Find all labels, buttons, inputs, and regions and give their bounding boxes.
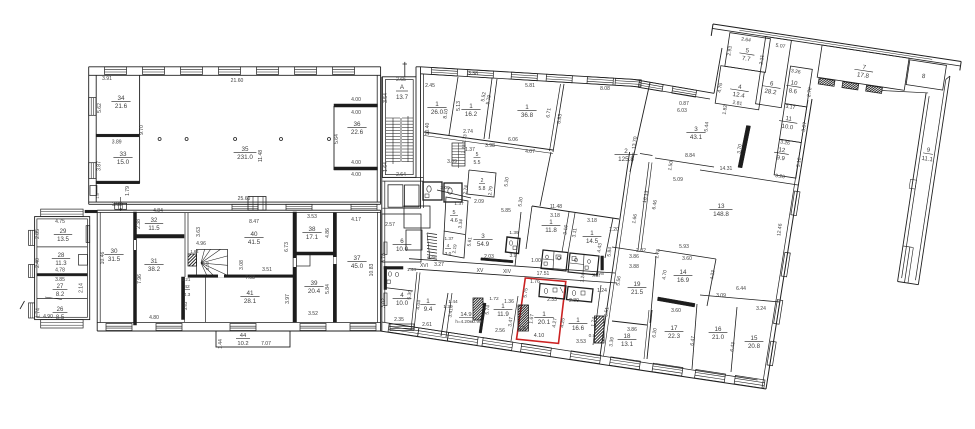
svg-text:20.4: 20.4	[308, 288, 321, 295]
svg-text:3.38: 3.38	[468, 71, 478, 77]
svg-text:6.73: 6.73	[284, 242, 290, 252]
svg-text:5: 5	[453, 210, 456, 216]
svg-text:13.7: 13.7	[396, 94, 409, 101]
svg-text:3.53: 3.53	[576, 339, 586, 345]
svg-text:33: 33	[119, 151, 127, 158]
svg-text:6.06: 6.06	[508, 137, 518, 143]
svg-text:7.96: 7.96	[137, 274, 143, 284]
svg-text:XIII: XIII	[592, 273, 600, 279]
svg-text:15: 15	[751, 335, 758, 342]
svg-text:9.4: 9.4	[424, 306, 433, 313]
svg-text:7.08: 7.08	[245, 275, 255, 281]
svg-text:37: 37	[353, 255, 361, 262]
svg-text:13: 13	[717, 203, 725, 210]
svg-text:1.39: 1.39	[509, 230, 519, 236]
svg-text:4.86: 4.86	[325, 228, 331, 238]
svg-text:21.60: 21.60	[231, 78, 244, 84]
svg-text:1.44: 1.44	[407, 267, 416, 272]
svg-text:2.74: 2.74	[463, 129, 473, 135]
svg-text:4.00: 4.00	[351, 97, 361, 103]
svg-text:3.53: 3.53	[307, 214, 317, 220]
svg-text:1.64: 1.64	[190, 249, 199, 254]
svg-text:4.80: 4.80	[149, 315, 159, 321]
svg-text:1.74: 1.74	[36, 308, 42, 318]
svg-text:3.08: 3.08	[112, 202, 122, 208]
svg-text:15.0: 15.0	[117, 159, 130, 166]
svg-text:54.9: 54.9	[477, 241, 490, 248]
svg-text:4.84: 4.84	[153, 208, 163, 214]
svg-text:10.40: 10.40	[425, 122, 431, 135]
svg-text:3.60: 3.60	[671, 308, 681, 314]
svg-text:3.60: 3.60	[682, 256, 692, 262]
svg-text:38.2: 38.2	[148, 266, 161, 273]
svg-text:4.90: 4.90	[43, 314, 53, 320]
svg-text:1.44: 1.44	[218, 339, 224, 349]
svg-text:7.7: 7.7	[741, 55, 751, 63]
svg-text:38: 38	[308, 226, 316, 233]
svg-text:11.9: 11.9	[497, 311, 509, 318]
svg-text:3.86: 3.86	[627, 327, 637, 333]
svg-text:32: 32	[151, 218, 158, 224]
svg-text:3.63: 3.63	[196, 227, 202, 237]
svg-text:XV: XV	[477, 268, 484, 274]
svg-text:4.10: 4.10	[534, 333, 545, 339]
svg-text:3.54: 3.54	[383, 93, 389, 103]
svg-text:4.17: 4.17	[351, 217, 361, 223]
svg-text:9.70: 9.70	[139, 125, 145, 135]
svg-text:5.8: 5.8	[479, 186, 486, 192]
svg-text:1: 1	[426, 298, 430, 305]
svg-text:1.36: 1.36	[504, 299, 514, 305]
svg-text:XIV: XIV	[503, 269, 512, 275]
svg-text:4.78: 4.78	[55, 268, 65, 274]
svg-text:13.5: 13.5	[57, 237, 69, 243]
svg-text:2.45: 2.45	[425, 83, 435, 89]
svg-text:35: 35	[241, 146, 249, 153]
svg-text:16: 16	[715, 326, 722, 333]
svg-text:2.02: 2.02	[636, 248, 646, 254]
svg-text:0.90: 0.90	[472, 319, 482, 325]
svg-text:1.21: 1.21	[182, 277, 191, 282]
svg-text:3.97: 3.97	[285, 294, 291, 304]
svg-text:16.2: 16.2	[465, 111, 478, 118]
svg-text:1.37: 1.37	[445, 236, 454, 241]
svg-text:20.1: 20.1	[538, 319, 551, 326]
svg-text:16.9: 16.9	[677, 277, 690, 284]
svg-text:3.86: 3.86	[629, 254, 639, 260]
svg-text:41.5: 41.5	[248, 239, 261, 246]
svg-text:10.0: 10.0	[396, 246, 409, 253]
svg-text:26: 26	[57, 307, 64, 313]
svg-text:3.27: 3.27	[434, 262, 444, 268]
svg-text:231.0: 231.0	[237, 154, 253, 161]
svg-text:41: 41	[246, 290, 254, 297]
svg-text:28.1: 28.1	[244, 298, 257, 305]
svg-text:28: 28	[58, 253, 65, 259]
svg-text:11.48: 11.48	[550, 204, 562, 210]
svg-text:19: 19	[634, 281, 641, 288]
svg-text:2: 2	[624, 148, 628, 155]
svg-text:2.38: 2.38	[136, 219, 142, 229]
svg-text:2.33: 2.33	[547, 297, 557, 303]
svg-text:21.6: 21.6	[115, 103, 128, 110]
svg-text:5.84: 5.84	[325, 284, 331, 294]
svg-text:6: 6	[400, 238, 404, 245]
svg-text:21.0: 21.0	[712, 334, 725, 341]
svg-text:10.0: 10.0	[396, 300, 409, 307]
svg-text:6.03: 6.03	[677, 108, 687, 114]
svg-text:1: 1	[542, 311, 546, 318]
svg-text:4.6: 4.6	[450, 218, 458, 224]
svg-text:31: 31	[150, 258, 158, 265]
svg-text:29: 29	[60, 229, 67, 235]
svg-text:1: 1	[469, 103, 473, 110]
svg-text:4.75: 4.75	[55, 219, 65, 225]
svg-text:1.64: 1.64	[383, 162, 389, 172]
svg-text:14: 14	[680, 269, 687, 276]
svg-text:42: 42	[184, 284, 190, 290]
svg-text:3.09: 3.09	[716, 293, 726, 299]
svg-text:8.5: 8.5	[56, 315, 65, 321]
svg-text:1: 1	[525, 104, 529, 111]
svg-text:5.09: 5.09	[673, 177, 683, 183]
svg-text:3.87: 3.87	[96, 161, 102, 171]
svg-text:26.0: 26.0	[431, 109, 444, 116]
svg-text:17.1: 17.1	[306, 234, 319, 241]
svg-text:1: 1	[549, 219, 553, 226]
svg-text:5.85: 5.85	[501, 208, 511, 214]
svg-text:1.79: 1.79	[125, 186, 131, 196]
svg-text:10.2: 10.2	[237, 341, 248, 347]
svg-text:30: 30	[110, 248, 118, 255]
svg-text:14.31: 14.31	[720, 166, 733, 172]
svg-text:4.00: 4.00	[351, 172, 361, 178]
svg-text:4: 4	[447, 243, 450, 249]
svg-text:1.72: 1.72	[489, 296, 499, 302]
svg-text:2.57: 2.57	[385, 222, 395, 228]
svg-text:14.9: 14.9	[460, 312, 471, 318]
svg-text:3: 3	[694, 126, 698, 133]
svg-text:2.61: 2.61	[422, 322, 432, 328]
svg-text:3.78: 3.78	[381, 253, 387, 263]
svg-text:10.83: 10.83	[369, 263, 375, 276]
svg-text:3.24: 3.24	[756, 306, 766, 312]
svg-text:3.91: 3.91	[102, 76, 112, 82]
svg-text:3.02: 3.02	[381, 298, 387, 308]
svg-text:34: 34	[117, 95, 125, 102]
svg-text:5: 5	[476, 152, 479, 158]
svg-text:5.13: 5.13	[456, 101, 462, 111]
svg-text:2.65: 2.65	[396, 77, 406, 83]
svg-text:4.96: 4.96	[196, 241, 206, 247]
svg-text:8.47: 8.47	[249, 219, 259, 225]
svg-text:0.90: 0.90	[518, 326, 528, 332]
svg-text:3.98: 3.98	[485, 143, 495, 149]
svg-text:45.0: 45.0	[351, 263, 364, 270]
svg-text:6.44: 6.44	[736, 286, 746, 292]
svg-text:5.81: 5.81	[525, 83, 535, 89]
svg-text:1: 1	[576, 317, 580, 324]
svg-text:5.93: 5.93	[679, 244, 689, 250]
svg-text:3.00: 3.00	[205, 261, 210, 270]
svg-text:11.8: 11.8	[545, 227, 557, 234]
svg-text:0.87: 0.87	[679, 101, 689, 107]
svg-text:10.46: 10.46	[100, 251, 106, 264]
svg-text:1: 1	[435, 101, 439, 108]
svg-text:1.37: 1.37	[465, 147, 475, 153]
svg-text:43.1: 43.1	[690, 134, 703, 141]
svg-text:44: 44	[240, 333, 247, 339]
svg-text:8.84: 8.84	[685, 153, 695, 159]
svg-text:3.51: 3.51	[262, 267, 272, 273]
svg-text:4.3: 4.3	[184, 292, 191, 298]
svg-text:1.5: 1.5	[96, 193, 100, 198]
svg-text:3.53: 3.53	[183, 301, 188, 310]
svg-text:36.8: 36.8	[521, 112, 534, 119]
svg-text:17.51: 17.51	[537, 271, 550, 277]
svg-text:39: 39	[310, 280, 318, 287]
svg-text:16.6: 16.6	[572, 325, 585, 332]
svg-text:31.5: 31.5	[108, 256, 121, 263]
svg-text:5.64: 5.64	[334, 134, 340, 144]
svg-text:3.09: 3.09	[447, 159, 457, 165]
svg-text:3.52: 3.52	[308, 311, 318, 317]
svg-text:4.07: 4.07	[525, 149, 535, 155]
svg-text:3: 3	[481, 233, 485, 240]
svg-text:3.9: 3.9	[510, 253, 517, 259]
svg-text:11.3: 11.3	[55, 261, 67, 267]
svg-text:18: 18	[624, 333, 631, 340]
svg-text:2.14: 2.14	[79, 283, 85, 293]
svg-text:27: 27	[57, 284, 64, 290]
svg-text:3.89: 3.89	[112, 140, 122, 146]
svg-text:3.85: 3.85	[55, 277, 65, 283]
svg-text:2.09: 2.09	[474, 199, 484, 205]
svg-text:40: 40	[250, 231, 258, 238]
svg-text:11.48: 11.48	[258, 150, 264, 162]
svg-text:148.8: 148.8	[713, 211, 729, 218]
svg-text:1.00: 1.00	[531, 258, 541, 264]
svg-text:17: 17	[671, 325, 678, 332]
svg-text:7.07: 7.07	[261, 341, 271, 347]
svg-text:2.40: 2.40	[35, 258, 41, 268]
svg-text:20.8: 20.8	[748, 343, 761, 350]
svg-text:3.18: 3.18	[550, 213, 560, 219]
svg-text:22.3: 22.3	[668, 333, 681, 340]
svg-text:2: 2	[481, 178, 484, 184]
svg-text:8.08: 8.08	[600, 86, 610, 92]
svg-text:3.88: 3.88	[629, 264, 639, 270]
svg-text:5.62: 5.62	[97, 103, 103, 113]
svg-text:4.00: 4.00	[351, 110, 361, 116]
svg-text:3.18: 3.18	[587, 218, 597, 224]
svg-text:3.08: 3.08	[239, 260, 245, 270]
svg-text:5.5: 5.5	[474, 160, 481, 166]
svg-text:22.6: 22.6	[351, 129, 364, 136]
svg-text:11.5: 11.5	[148, 226, 160, 232]
svg-text:XVI: XVI	[420, 263, 428, 269]
svg-text:2.30: 2.30	[569, 298, 579, 304]
svg-text:h=4.20м: h=4.20м	[455, 319, 472, 324]
svg-text:2.35: 2.35	[394, 317, 404, 323]
svg-text:36: 36	[353, 121, 361, 128]
svg-text:2.56: 2.56	[495, 328, 505, 334]
svg-text:1: 1	[590, 230, 594, 237]
svg-text:21.5: 21.5	[631, 289, 644, 296]
svg-text:4: 4	[400, 292, 404, 299]
svg-text:8.2: 8.2	[56, 292, 65, 298]
svg-text:2.85: 2.85	[35, 229, 41, 239]
svg-text:4.00: 4.00	[351, 160, 361, 166]
svg-text:1.76: 1.76	[530, 279, 540, 285]
svg-text:1.20: 1.20	[609, 227, 619, 233]
svg-text:13.1: 13.1	[621, 341, 634, 348]
svg-text:1.24: 1.24	[597, 288, 607, 294]
